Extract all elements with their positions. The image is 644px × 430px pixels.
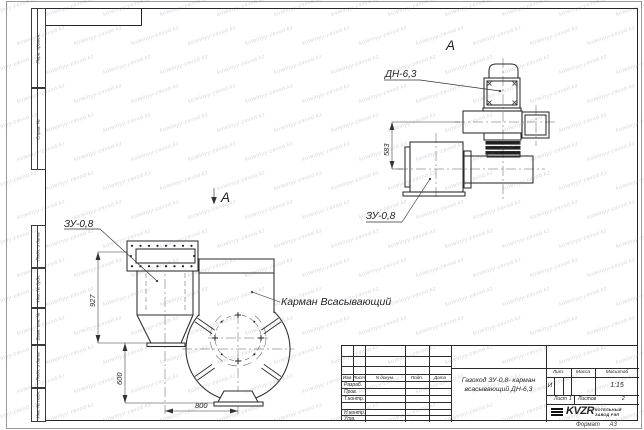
dim-600: 600 xyxy=(115,372,124,385)
company-name-line1: КОТЕЛЬНЫЙ xyxy=(595,408,622,412)
sheets-label: Листов xyxy=(578,396,596,402)
kvzr-logo-text: KVZR xyxy=(566,405,594,417)
kvzr-logo-icon xyxy=(551,408,563,418)
row-nkontr: Н.контр. xyxy=(344,410,365,416)
label-zu-aux: ЗУ-0,8 xyxy=(366,211,396,222)
format-label: Формат xyxy=(576,422,600,428)
dim-583: 583 xyxy=(382,143,391,156)
aux-view-geometry xyxy=(403,64,549,196)
view-arrow-letter: А xyxy=(220,190,230,205)
format-note: Формат А3 xyxy=(576,422,617,428)
drawing-sheet: Перв. примен. Справ. № Подп. и дата Инв.… xyxy=(0,0,644,430)
title-block: Изм. Лист N докум. Подп. Дата Разраб. Пр… xyxy=(341,345,638,421)
aux-view-letter: А xyxy=(445,38,455,53)
view-direction-arrowhead xyxy=(211,197,217,205)
label-suction-pocket: Карман Всасывающий xyxy=(281,296,391,308)
motor-bolt-x-marks xyxy=(488,82,517,105)
label-dn: ДН-6,3 xyxy=(384,69,417,80)
col-ndokum: N докум. xyxy=(365,375,405,380)
dim-800: 800 xyxy=(195,401,208,410)
label-zu-main: ЗУ-0,8 xyxy=(64,219,94,230)
main-view-geometry xyxy=(127,241,290,406)
doc-title-line2: всасывающий ДН-6,3 xyxy=(451,386,546,393)
company-name-line2: ЗАВОД РЭП xyxy=(595,413,619,417)
scale-value: 1:15 xyxy=(595,382,639,389)
col-podp: Подп. xyxy=(405,375,429,380)
col-data: Дата xyxy=(429,375,451,380)
row-prov: Пров. xyxy=(344,389,357,395)
sheet-value: 1 xyxy=(569,396,572,402)
row-tkontr: Т.контр. xyxy=(344,396,364,402)
mass-header: Масса xyxy=(571,370,595,375)
row-utv: Утв. xyxy=(344,416,355,422)
col-izm: Изм. xyxy=(342,375,353,380)
row-razrab: Разраб. xyxy=(344,382,362,388)
doc-title-line1: Газоход ЗУ-0,8- карман xyxy=(451,377,546,384)
col-list: Лист xyxy=(353,375,365,380)
lit-header: Лит. xyxy=(546,370,571,375)
dim-927: 927 xyxy=(88,294,97,307)
sheet-label: Лист xyxy=(554,396,567,402)
lit-value: И xyxy=(546,382,554,389)
scale-header: Масштаб xyxy=(595,370,639,375)
sheets-value: 2 xyxy=(622,396,625,402)
format-value: А3 xyxy=(610,422,617,428)
